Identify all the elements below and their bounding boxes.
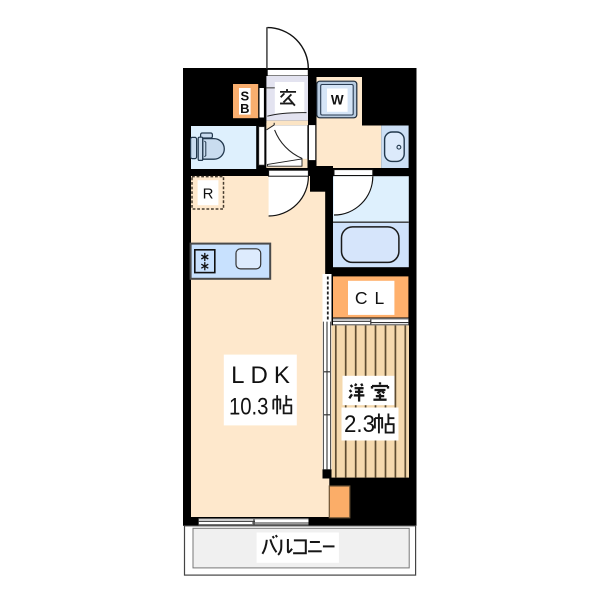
svg-text:LDK: LDK [231,362,296,389]
svg-text:R: R [203,185,214,202]
svg-text:2.3: 2.3 [344,411,375,438]
svg-text:CL: CL [355,288,391,308]
svg-text:W: W [331,93,344,108]
svg-text:B: B [240,101,249,116]
svg-text:10.3: 10.3 [229,394,269,421]
